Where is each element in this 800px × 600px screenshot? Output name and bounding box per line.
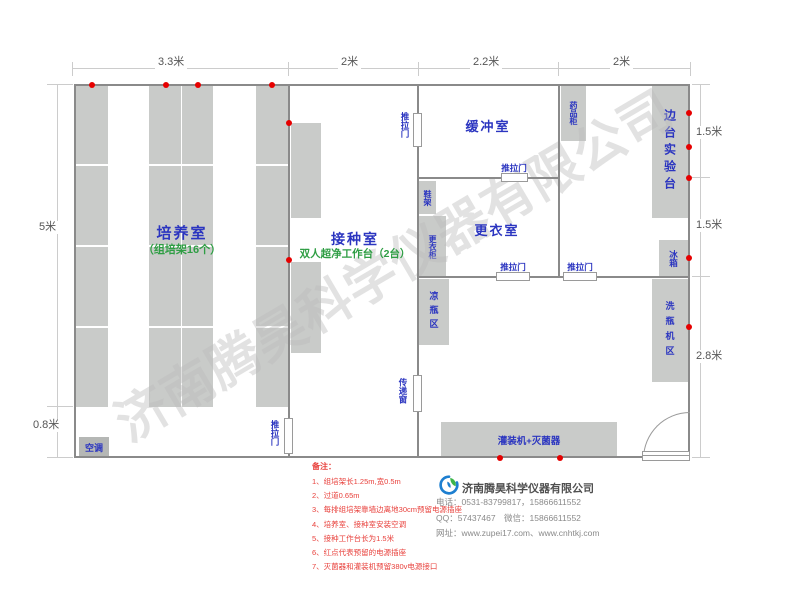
clean-workbench (291, 123, 321, 218)
clean-workbench (291, 262, 321, 353)
dim-tick (47, 457, 73, 458)
filling-machine-sterilizer: 灌装机+灭菌器 (441, 422, 617, 458)
wall-partition-cultivation (288, 84, 290, 458)
wall-changing-bottomroom (417, 276, 690, 278)
dim-top-1: 3.3米 (155, 56, 187, 69)
sliding-door (501, 173, 528, 182)
company-qq: QQ：57437467 微信：15866611552 (436, 512, 581, 524)
dim-right-2: 1.5米 (693, 219, 725, 232)
room-sub-cultivation: （组培架16个） (112, 241, 252, 257)
dim-tick (692, 457, 710, 458)
wall-right (688, 84, 690, 458)
company-phone: 电话：0531-83799817，15866611552 (436, 496, 581, 508)
medicine-cabinet-label: 药品柜 (568, 101, 579, 125)
shoe-rack: 鞋架 (419, 181, 436, 214)
power-outlet-dot (686, 255, 692, 261)
dim-left-2: 0.8米 (30, 419, 62, 432)
company-website: 网址：www.zupei17.com、www.cnhtkj.com (436, 527, 599, 539)
dim-right-1: 1.5米 (693, 126, 725, 139)
dim-tick (692, 84, 710, 85)
note-item: 6、红点代表预留的电源插座 (312, 547, 462, 558)
culture-rack-column (256, 85, 288, 407)
medicine-cabinet: 药品柜 (561, 85, 586, 141)
power-outlet-dot (195, 82, 201, 88)
air-conditioner: 空调 (79, 437, 109, 457)
dim-tick (47, 84, 73, 85)
air-conditioner-label: 空调 (85, 441, 103, 454)
wall-buffer-changing (417, 177, 560, 179)
floorplan-canvas: 济南腾昊科学仪器有限公司 3.3米 2米 2.2米 2米 5米 0.8米 1.5… (0, 0, 800, 600)
note-item: 7、灭菌器和灌装机预留380v电源接口 (312, 561, 462, 572)
filling-machine-label: 灌装机+灭菌器 (498, 433, 561, 447)
side-lab-bench-label: 边台实验台 (662, 109, 679, 194)
room-title-changing: 更衣室 (437, 220, 557, 239)
dim-left-1: 5米 (36, 221, 59, 234)
dim-top-3: 2.2米 (470, 56, 502, 69)
sliding-door-label: 推拉门 (399, 112, 410, 138)
dim-tick (47, 406, 73, 407)
room-sub-inoculation: 双人超净工作台（2台） (288, 246, 422, 261)
sliding-door (413, 113, 422, 147)
transfer-window-label: 传递窗 (397, 378, 408, 404)
room-title-cultivation: 培养室 (122, 222, 242, 243)
notes-title: 备注： (312, 461, 462, 472)
cool-bottle-area-label: 凉瓶区 (428, 291, 441, 333)
dim-right-3: 2.8米 (693, 350, 725, 363)
sliding-door (284, 418, 293, 454)
power-outlet-dot (686, 324, 692, 330)
cool-bottle-area: 凉瓶区 (419, 279, 449, 345)
dim-tick (692, 276, 710, 277)
sliding-door (563, 272, 597, 281)
culture-rack-column (76, 85, 108, 407)
sliding-door-label: 推拉门 (269, 420, 280, 446)
company-logo-icon (439, 475, 459, 495)
dim-tick (690, 62, 691, 76)
power-outlet-dot (269, 82, 275, 88)
dim-tick (288, 62, 289, 76)
power-outlet-dot (89, 82, 95, 88)
dim-tick (558, 62, 559, 76)
fridge: 冰箱 (659, 240, 688, 277)
company-name: 济南腾昊科学仪器有限公司 (462, 480, 594, 496)
dim-tick (418, 62, 419, 76)
dim-top-4: 2米 (610, 56, 633, 69)
power-outlet-dot (163, 82, 169, 88)
dim-tick (72, 62, 73, 76)
power-outlet-dot (686, 175, 692, 181)
dim-tick (692, 177, 710, 178)
dim-line-left (57, 85, 58, 458)
transfer-window (413, 375, 422, 412)
sliding-door-label: 推拉门 (563, 262, 597, 272)
entrance-door-leaf (642, 451, 690, 461)
room-title-buffer: 缓冲室 (428, 116, 548, 135)
shoe-rack-label: 鞋架 (422, 190, 433, 206)
wall-left (74, 84, 76, 458)
side-lab-bench: 边台实验台 (652, 85, 688, 218)
wall-partition-buffer-right (558, 84, 560, 278)
power-outlet-dot (557, 455, 563, 461)
power-outlet-dot (686, 144, 692, 150)
sliding-door-label: 推拉门 (496, 262, 530, 272)
dim-top-2: 2米 (338, 56, 361, 69)
bottle-washer-area-label: 洗瓶机区 (664, 301, 677, 361)
sliding-door (496, 272, 530, 281)
sliding-door-label: 推拉门 (497, 163, 531, 173)
power-outlet-dot (686, 110, 692, 116)
power-outlet-dot (286, 257, 292, 263)
door-leaf-line (643, 455, 689, 456)
fridge-label: 冰箱 (668, 250, 680, 267)
bottle-washer-area: 洗瓶机区 (652, 279, 688, 382)
power-outlet-dot (286, 120, 292, 126)
dim-line-right (700, 85, 701, 458)
power-outlet-dot (497, 455, 503, 461)
